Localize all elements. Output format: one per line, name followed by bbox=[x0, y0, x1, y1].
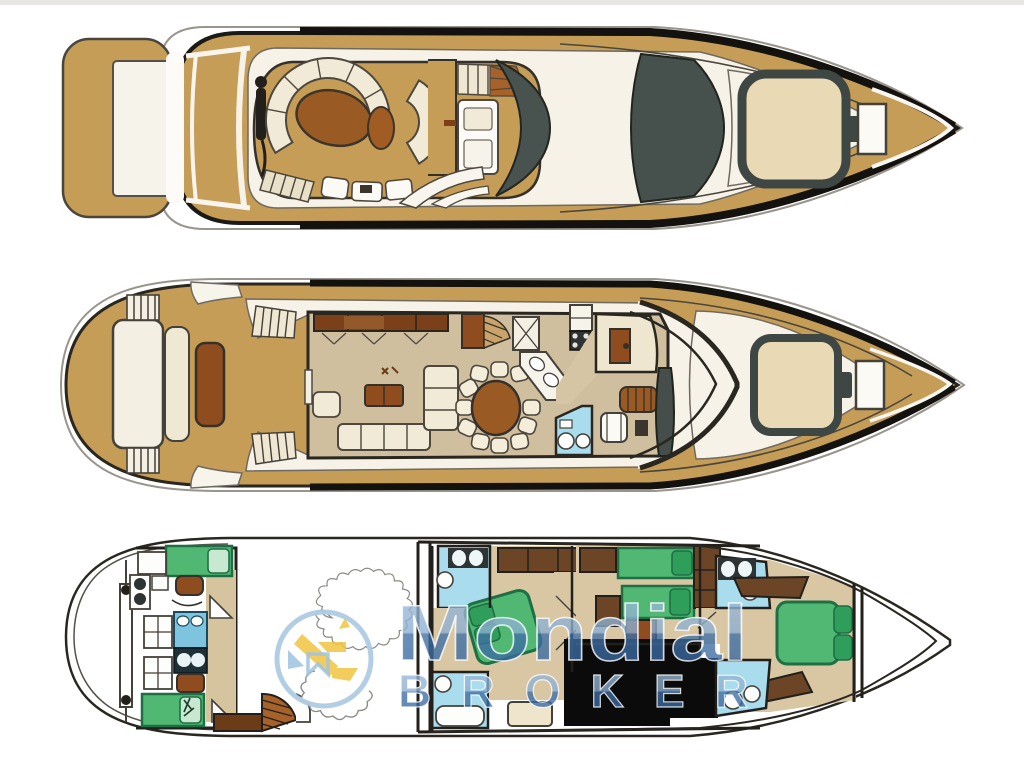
svg-text:Mondial: Mondial bbox=[396, 588, 748, 677]
